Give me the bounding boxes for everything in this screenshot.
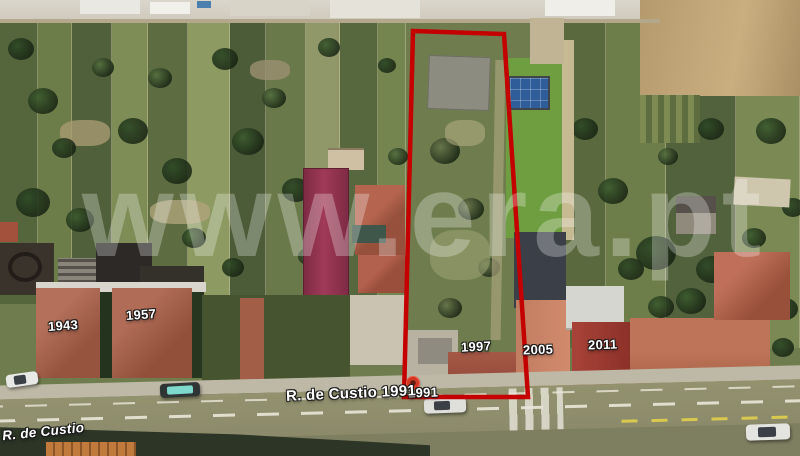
tree (8, 38, 34, 60)
building-roof (80, 0, 140, 14)
dirt-patch (250, 60, 290, 80)
building-roof (545, 0, 615, 16)
tilled-field (640, 0, 800, 96)
tree (148, 68, 172, 88)
ruin-foundation (427, 55, 491, 111)
hedge (100, 292, 112, 378)
tree (676, 288, 706, 314)
red-roof-corner (0, 222, 18, 242)
tree (318, 38, 340, 57)
roof-ring-mark (8, 252, 42, 282)
tree (118, 118, 148, 144)
tree (52, 138, 76, 158)
house-1943-roof (36, 288, 100, 378)
house-1957-roof (112, 288, 192, 378)
watermark-text: www.era.pt (82, 148, 767, 284)
house-number-label-2005: 2005 (523, 341, 554, 357)
house-number-label-1997: 1997 (461, 338, 492, 355)
tiled-roof-edge (46, 442, 136, 456)
tree (212, 48, 238, 70)
tree (28, 88, 58, 114)
hedge (192, 292, 202, 378)
dirt-yard (530, 18, 564, 64)
tree (16, 188, 50, 217)
tree (698, 118, 724, 140)
tree (262, 88, 286, 108)
car (746, 423, 791, 441)
tree (648, 296, 674, 318)
pool (197, 1, 211, 8)
tree (438, 298, 462, 318)
house-number-label-1943: 1943 (48, 317, 79, 334)
satellite-map-canvas[interactable]: 1943 1957 1997 2005 2011 1991 R. de Cust… (0, 0, 800, 456)
pool-solar-panel (508, 76, 550, 110)
building-roof (150, 2, 190, 14)
building-roof (330, 0, 420, 18)
tree (378, 58, 396, 73)
zebra-crossing (509, 387, 564, 430)
tree (756, 118, 786, 144)
paved-yard (348, 295, 406, 365)
building-roof (230, 0, 310, 16)
house-number-label-2011: 2011 (588, 336, 618, 352)
car (160, 382, 201, 398)
tree (92, 58, 114, 77)
tree (572, 118, 598, 140)
house-number-label-1957: 1957 (126, 306, 157, 323)
dry-scrub-patch (445, 120, 485, 146)
garden-plot-rows (640, 95, 700, 143)
